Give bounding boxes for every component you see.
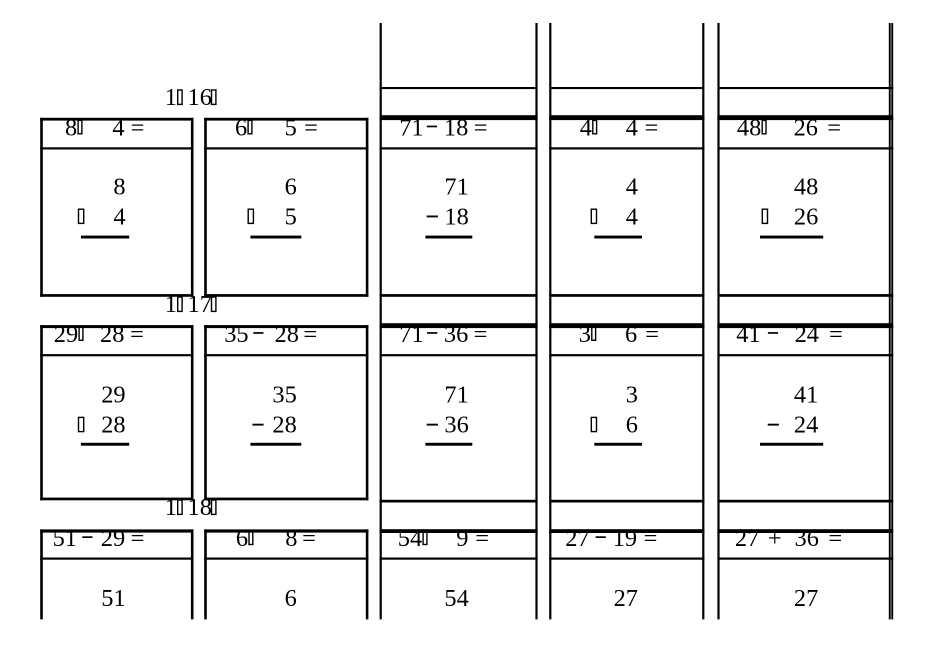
svg-text:4: 4 [112,115,124,142]
svg-text:=: = [304,115,318,142]
svg-text:6: 6 [626,412,638,439]
svg-text:4: 4 [626,203,638,230]
svg-text:36: 36 [444,412,468,439]
svg-text:28: 28 [275,321,299,348]
svg-text:26: 26 [794,115,818,142]
svg-text:=: = [131,525,145,552]
svg-text:27: 27 [565,525,589,552]
svg-text:3: 3 [579,321,591,348]
svg-text:=: = [130,321,144,348]
svg-text:=: = [475,525,489,552]
svg-text:24: 24 [795,321,819,348]
svg-text:29: 29 [101,381,125,408]
svg-text:=: = [645,321,659,348]
svg-text:=: = [474,115,488,142]
svg-text:+: + [768,525,782,552]
svg-text:=: = [828,525,842,552]
svg-text:29: 29 [101,525,125,552]
svg-text:4: 4 [580,115,592,142]
svg-text:6: 6 [235,115,247,142]
svg-text:24: 24 [794,412,818,439]
svg-text:=: = [303,321,317,348]
svg-text:16: 16 [188,84,212,111]
svg-text:36: 36 [444,321,468,348]
svg-text:5: 5 [285,115,297,142]
svg-text:=: = [131,115,145,142]
svg-text:48: 48 [737,115,761,142]
svg-text:=: = [827,115,841,142]
svg-text:18: 18 [444,115,468,142]
svg-text:=: = [829,321,843,348]
svg-text:=: = [474,321,488,348]
svg-text:3: 3 [626,381,638,408]
svg-text:8: 8 [113,174,125,201]
svg-text:41: 41 [736,321,760,348]
svg-text:28: 28 [100,321,124,348]
svg-text:4: 4 [626,115,638,142]
svg-text:1: 1 [165,84,177,111]
svg-text:51: 51 [53,525,77,552]
svg-text:6: 6 [285,585,297,612]
svg-text:71: 71 [444,174,468,201]
svg-text:=: = [645,115,659,142]
svg-text:=: = [302,525,316,552]
svg-text:18: 18 [444,203,468,230]
svg-text:6: 6 [625,321,637,348]
svg-text:36: 36 [795,525,819,552]
svg-text:51: 51 [101,585,125,612]
svg-text:=: = [644,525,658,552]
svg-text:27: 27 [614,585,638,612]
svg-text:6: 6 [285,174,297,201]
svg-text:8: 8 [285,525,297,552]
svg-text:4: 4 [113,203,125,230]
svg-text:9: 9 [456,525,468,552]
svg-text:6: 6 [236,525,248,552]
svg-text:28: 28 [272,412,296,439]
svg-text:28: 28 [101,412,125,439]
svg-text:19: 19 [613,525,637,552]
svg-text:27: 27 [735,525,759,552]
svg-text:54: 54 [398,525,422,552]
svg-text:4: 4 [626,174,638,201]
svg-text:5: 5 [285,203,297,230]
svg-text:35: 35 [272,381,296,408]
svg-text:29: 29 [54,321,78,348]
svg-text:27: 27 [794,585,818,612]
svg-text:71: 71 [444,381,468,408]
svg-text:8: 8 [65,115,77,142]
svg-text:71: 71 [399,321,423,348]
svg-text:71: 71 [399,115,423,142]
svg-text:35: 35 [224,321,248,348]
svg-text:48: 48 [794,174,818,201]
svg-text:54: 54 [444,585,468,612]
svg-text:26: 26 [794,203,818,230]
svg-text:41: 41 [794,381,818,408]
